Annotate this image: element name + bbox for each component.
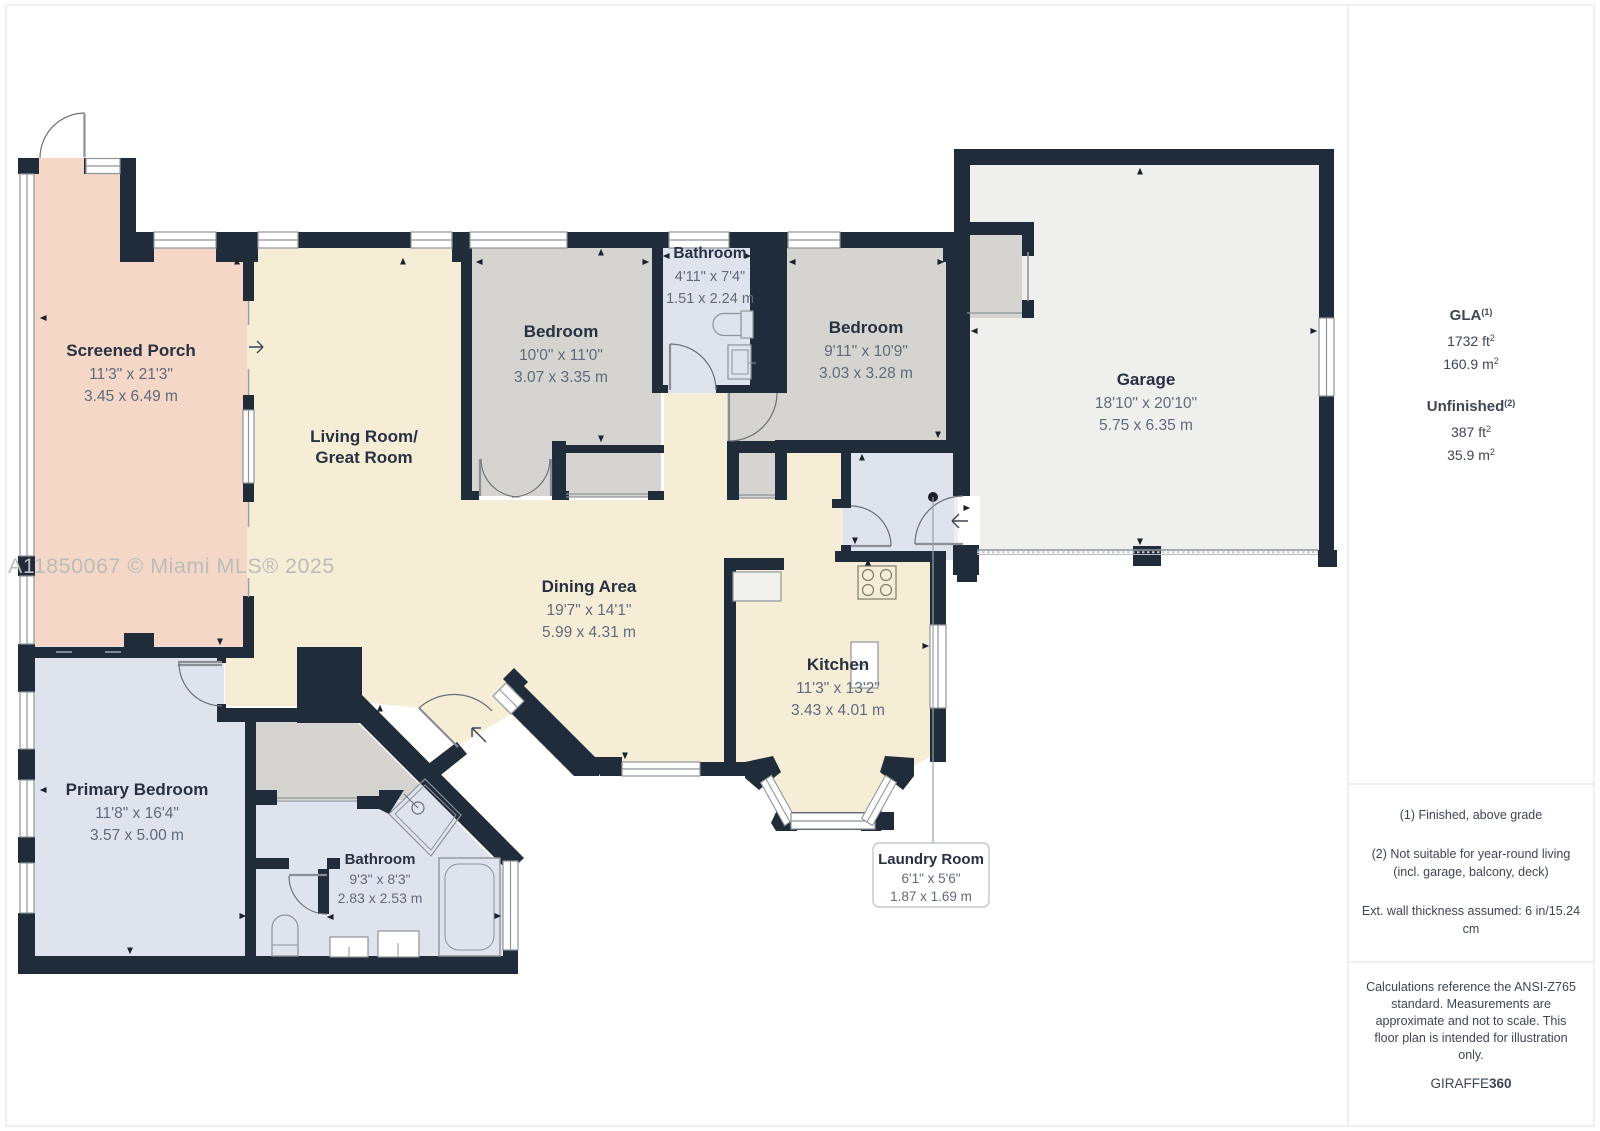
svg-text:A11850067 © Miami MLS® 2025: A11850067 © Miami MLS® 2025 — [8, 554, 335, 578]
svg-text:Laundry Room: Laundry Room — [878, 851, 984, 868]
svg-text:Primary Bedroom: Primary Bedroom — [66, 780, 209, 799]
svg-text:6'1" x 5'6": 6'1" x 5'6" — [901, 871, 960, 886]
svg-text:5.99 x 4.31 m: 5.99 x 4.31 m — [542, 624, 636, 641]
svg-text:3.43 x 4.01 m: 3.43 x 4.01 m — [791, 702, 885, 719]
svg-text:GIRAFFE360: GIRAFFE360 — [1430, 1076, 1511, 1091]
svg-text:(2) Not suitable for year-roun: (2) Not suitable for year-round living — [1372, 847, 1571, 861]
svg-text:19'7" x 14'1": 19'7" x 14'1" — [546, 602, 631, 619]
svg-text:Calculations reference the ANS: Calculations reference the ANSI-Z765 — [1366, 980, 1576, 994]
svg-text:5.75 x 6.35 m: 5.75 x 6.35 m — [1099, 417, 1193, 434]
svg-text:(1) Finished, above grade: (1) Finished, above grade — [1400, 808, 1542, 822]
svg-text:GLA(1): GLA(1) — [1450, 307, 1493, 324]
svg-text:10'0" x 11'0": 10'0" x 11'0" — [519, 347, 603, 364]
svg-text:Great Room: Great Room — [315, 448, 412, 467]
svg-text:2.83 x 2.53 m: 2.83 x 2.53 m — [338, 890, 423, 906]
svg-text:Bedroom: Bedroom — [524, 322, 599, 341]
svg-text:floor plan is intended for ill: floor plan is intended for illustration — [1374, 1031, 1567, 1045]
svg-text:Bedroom: Bedroom — [829, 318, 904, 337]
svg-text:1.51 x 2.24 m: 1.51 x 2.24 m — [666, 291, 754, 307]
svg-text:(incl. garage, balcony, deck): (incl. garage, balcony, deck) — [1393, 865, 1548, 879]
svg-text:cm: cm — [1463, 922, 1480, 936]
svg-text:9'3" x 8'3": 9'3" x 8'3" — [349, 871, 410, 887]
svg-text:1.87 x 1.69 m: 1.87 x 1.69 m — [890, 889, 972, 904]
svg-text:387 ft2: 387 ft2 — [1451, 424, 1491, 440]
svg-text:11'3" x 13'2": 11'3" x 13'2" — [796, 680, 880, 697]
svg-text:standard. Measurements are: standard. Measurements are — [1391, 997, 1551, 1011]
svg-text:Ext. wall thickness assumed: 6: Ext. wall thickness assumed: 6 in/15.24 — [1362, 904, 1580, 918]
svg-text:Garage: Garage — [1117, 370, 1176, 389]
svg-text:1732 ft2: 1732 ft2 — [1447, 333, 1495, 349]
svg-text:Bathroom: Bathroom — [345, 851, 416, 868]
svg-text:Bathroom: Bathroom — [673, 245, 746, 262]
svg-text:Dining Area: Dining Area — [542, 577, 637, 596]
svg-text:3.03 x 3.28 m: 3.03 x 3.28 m — [819, 365, 913, 382]
svg-text:160.9 m2: 160.9 m2 — [1443, 356, 1499, 372]
svg-text:3.45 x 6.49 m: 3.45 x 6.49 m — [84, 388, 178, 405]
svg-text:3.57 x 5.00 m: 3.57 x 5.00 m — [90, 827, 184, 844]
svg-text:9'11" x 10'9": 9'11" x 10'9" — [824, 343, 908, 360]
svg-text:Screened Porch: Screened Porch — [66, 341, 195, 360]
svg-text:11'8" x 16'4": 11'8" x 16'4" — [95, 805, 179, 822]
svg-text:11'3" x 21'3": 11'3" x 21'3" — [89, 366, 173, 383]
svg-text:Kitchen: Kitchen — [807, 655, 869, 674]
svg-text:only.: only. — [1458, 1048, 1483, 1062]
svg-text:4'11" x 7'4": 4'11" x 7'4" — [675, 269, 745, 285]
svg-text:approximate and not to scale.: approximate and not to scale. This — [1376, 1014, 1567, 1028]
svg-text:18'10" x 20'10": 18'10" x 20'10" — [1095, 395, 1197, 412]
svg-text:3.07 x 3.35 m: 3.07 x 3.35 m — [514, 369, 608, 386]
svg-text:Unfinished(2): Unfinished(2) — [1427, 398, 1516, 415]
svg-text:35.9 m2: 35.9 m2 — [1447, 447, 1495, 463]
svg-text:Living Room/: Living Room/ — [310, 427, 418, 446]
